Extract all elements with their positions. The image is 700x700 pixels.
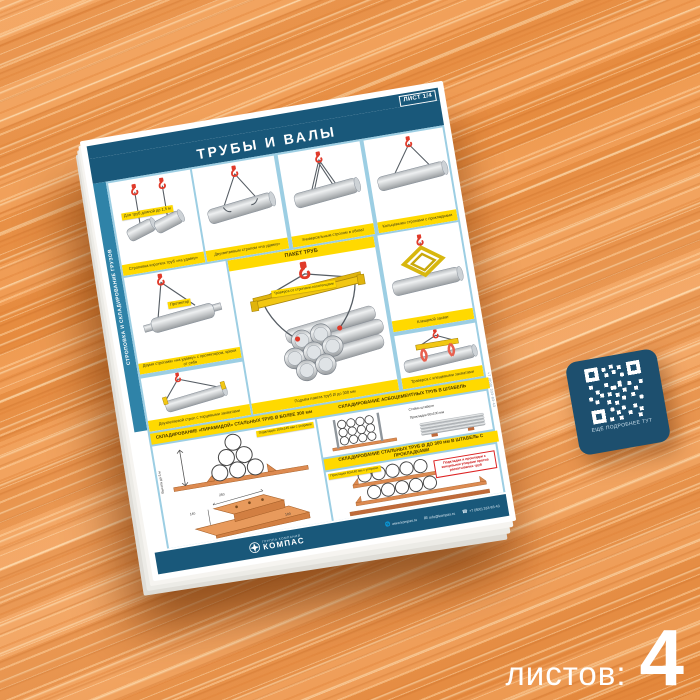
panel-short-pipes: Для труб длиной до 1,5 м Строповка корот… (108, 170, 205, 276)
site-contact: 🌐www.kompas.ru (385, 518, 418, 528)
panel-ring-slings: Кольцевыми стропами с прокладками (363, 127, 457, 233)
qr-code (584, 360, 649, 425)
crane-hook-icon (131, 184, 138, 195)
panel-pincer-grab: Клещевой захват (377, 222, 474, 332)
diagram-pipe-package (229, 248, 397, 403)
phone-contact: ☎+7 (800) 333-83-43 (462, 504, 500, 515)
diagram-ring-slings (363, 127, 456, 222)
poster-sheet: ЛИСТ 1/4 ТРУБЫ И ВАЛЫ СТРОПОВКА И СКЛАДИ… (80, 81, 517, 582)
diagram-pincer-grab (377, 222, 472, 321)
sheets-count-label: листов: (506, 655, 627, 693)
crane-hook-icon (299, 261, 310, 278)
phone-icon: ☎ (462, 509, 468, 514)
panel-shaft-sling: Протектор Двумя стропами «на удавку» с п… (124, 261, 242, 375)
email-contact: ✉info@kompas.ru (424, 511, 456, 521)
sheets-count-number: 4 (640, 622, 685, 694)
poster-pad: ЛИСТ 1/4 ТРУБЫ И ВАЛЫ СТРОПОВКА И СКЛАДИ… (80, 81, 517, 582)
poster-content: Для труб длиной до 1,5 м Строповка корот… (106, 125, 506, 549)
globe-icon: 🌐 (385, 522, 391, 527)
panel-universal-sling: Универсальным стропом в обхват (278, 141, 375, 247)
panel-pipe-package: ПАКЕТ ТРУБ (227, 236, 399, 414)
brand-logo: ГРУППА КОМПАНИЙ КОМПАС (248, 533, 305, 553)
compass-emblem-icon (248, 541, 261, 554)
envelope-icon: ✉ (424, 516, 429, 521)
asbest-posts-label: Стойки штабеля (408, 405, 434, 413)
crane-hook-icon (416, 234, 423, 245)
crane-hook-icon (432, 329, 438, 338)
diagram-two-leg-sling (192, 156, 288, 252)
diagram-shaft-sling (124, 261, 240, 364)
sheets-count: листов: 4 (506, 622, 685, 694)
qr-badge: ЕЩЁ ПОДРОБНЕЕ ТУТ (565, 348, 672, 457)
scene: ЛИСТ 1/4 ТРУБЫ И ВАЛЫ СТРОПОВКА И СКЛАДИ… (0, 0, 700, 700)
panel-two-leg-sling: Двухветвевым стропом «на удавку» (192, 156, 289, 262)
crane-hook-icon (158, 177, 165, 188)
diagram-universal-sling (278, 141, 374, 237)
